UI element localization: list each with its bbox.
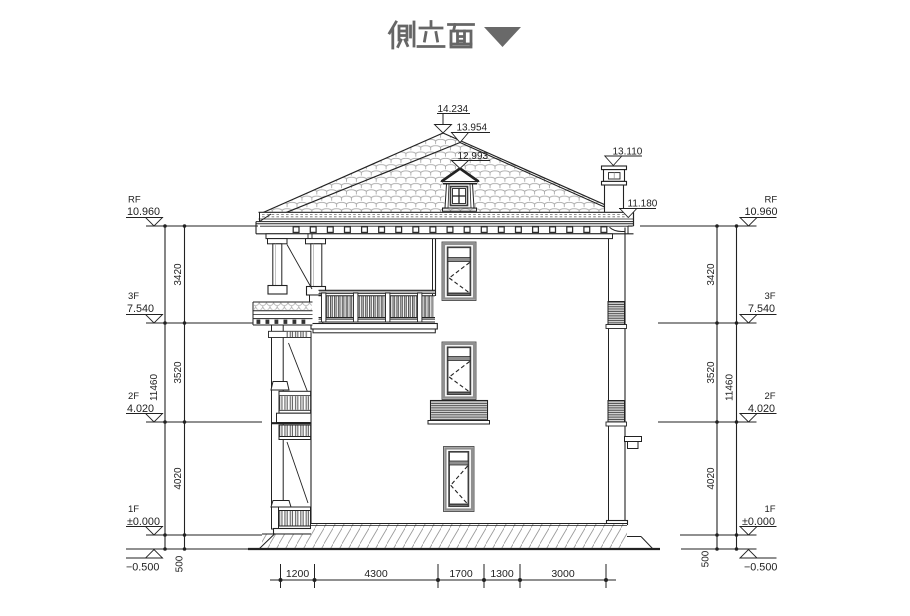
svg-text:2F: 2F (765, 391, 776, 402)
svg-text:±0.000: ±0.000 (742, 516, 775, 528)
svg-text:10.960: 10.960 (745, 206, 778, 218)
svg-text:1300: 1300 (490, 568, 514, 580)
svg-text:4020: 4020 (173, 467, 184, 490)
svg-text:1700: 1700 (449, 568, 473, 580)
svg-text:3520: 3520 (173, 361, 184, 384)
svg-text:7.540: 7.540 (748, 303, 775, 315)
svg-text:−0.500: −0.500 (744, 562, 777, 574)
svg-text:4.020: 4.020 (127, 403, 154, 415)
svg-text:4020: 4020 (706, 467, 717, 490)
svg-text:±0.000: ±0.000 (127, 516, 160, 528)
svg-text:2F: 2F (128, 391, 139, 402)
svg-text:RF: RF (765, 195, 778, 206)
svg-text:10.960: 10.960 (127, 206, 160, 218)
svg-text:4300: 4300 (364, 568, 388, 580)
svg-text:13.954: 13.954 (457, 123, 488, 134)
svg-text:1F: 1F (765, 504, 776, 515)
svg-text:500: 500 (701, 550, 712, 567)
svg-text:3000: 3000 (551, 568, 575, 580)
svg-text:3420: 3420 (706, 263, 717, 286)
svg-text:7.540: 7.540 (127, 303, 154, 315)
svg-text:4.020: 4.020 (748, 403, 775, 415)
svg-text:500: 500 (175, 555, 186, 572)
svg-text:RF: RF (128, 195, 141, 206)
svg-text:−0.500: −0.500 (126, 562, 159, 574)
svg-text:11.180: 11.180 (628, 199, 658, 210)
svg-text:3F: 3F (765, 291, 776, 302)
svg-text:11460: 11460 (725, 374, 736, 402)
svg-text:3520: 3520 (706, 361, 717, 384)
svg-text:1200: 1200 (286, 568, 310, 580)
svg-text:11460: 11460 (149, 374, 160, 402)
svg-text:3420: 3420 (173, 263, 184, 286)
svg-text:1F: 1F (128, 504, 139, 515)
svg-text:3F: 3F (128, 291, 139, 302)
